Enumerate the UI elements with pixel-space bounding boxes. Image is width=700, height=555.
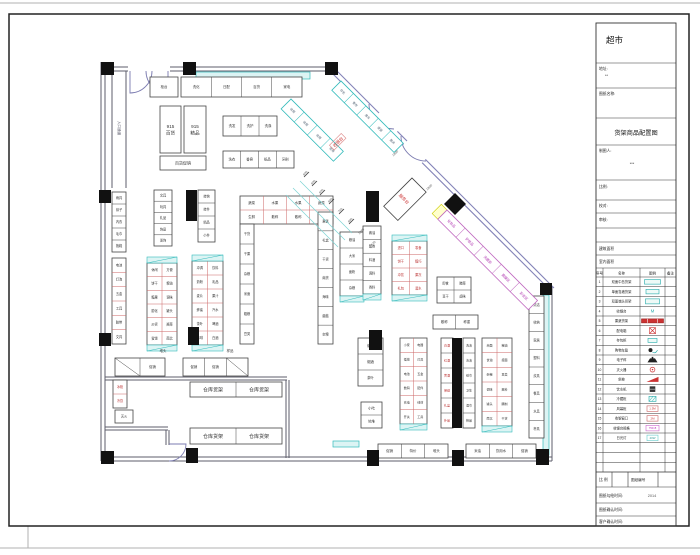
check-label: 校对:: [599, 203, 608, 208]
shelf-label: 洗洁: [466, 343, 472, 348]
shelf-group: 进口零食饼干糖巧冲饮果冻礼包酒水: [392, 235, 427, 301]
column: [452, 450, 464, 466]
legend-name: 灭火器: [617, 368, 628, 372]
legend-no: 7: [599, 339, 601, 343]
shelf-group: 促销特价堆头: [378, 444, 448, 458]
shelf-group: 散称称重: [433, 315, 478, 329]
shelf-label: 小家: [404, 342, 410, 347]
shelf-group: 果篮礼盒干货南货海味菌菇杂粮: [318, 212, 333, 344]
shelf-label: 促销: [149, 364, 156, 369]
shelf-label: 补品: [444, 418, 450, 423]
shelf-label: 小件: [203, 233, 210, 238]
shelf-label: 地堆: [368, 419, 375, 424]
scale-label: 比例:: [599, 184, 608, 189]
shelf-label: 牙刷: [282, 157, 289, 162]
column: [188, 327, 199, 345]
shelf-label: 袜子: [116, 207, 123, 212]
column: [369, 330, 382, 350]
shelf-label: 卫生: [466, 388, 472, 393]
shelf-label: 五金: [417, 371, 423, 376]
plan-label: 入口通道: [117, 121, 122, 136]
svg-text:1.5M: 1.5M: [649, 407, 656, 411]
shelf-group: 电池灯泡五金工具胶带文具: [112, 258, 126, 344]
addr-label: 地址:: [599, 66, 608, 71]
shelf-label: 仓库货架: [249, 386, 269, 393]
legend-row: 6配电箱: [599, 328, 656, 334]
shelf-label: 棉品: [466, 418, 472, 423]
maker-label: 制图人:: [599, 148, 611, 153]
legend-name: 风幕柜: [617, 406, 628, 411]
legend-header: 名称: [618, 271, 626, 276]
legend-row: 12饮水机: [598, 386, 655, 391]
shelf-label: 即食: [442, 281, 449, 286]
legend-no: 4: [599, 309, 601, 313]
shelf-label: 饮用水: [496, 448, 507, 453]
column: [366, 191, 379, 222]
svg-text:40W: 40W: [650, 436, 656, 440]
shelf-label: 罐头: [166, 308, 173, 313]
shelf-label: 塑料: [533, 355, 540, 360]
shelf-group: 米油饮用水促销: [466, 444, 536, 458]
shelf-label: 豆干: [442, 295, 449, 299]
shelf-label: 饼干: [398, 258, 405, 263]
legend-row: 7存包柜: [599, 338, 657, 343]
shelf-label: 礼盒: [444, 403, 450, 408]
shelf-label: 百货: [166, 129, 176, 136]
dimension-label: 600: [310, 179, 317, 186]
shelf-group: 915百货: [160, 106, 181, 153]
shelf-label: 家居: [533, 337, 539, 342]
shelf-label: 糖果: [151, 294, 158, 299]
shelf-label: 保健: [444, 388, 450, 393]
shelf-label: 蔬菜: [248, 200, 255, 205]
shelf-group: 冰柜冷饮: [113, 380, 127, 408]
legend-no: 13: [598, 397, 602, 401]
legend-no: 9: [599, 358, 601, 362]
shelf-label: 茶叶: [197, 321, 204, 326]
shelf-label: 方便: [166, 267, 173, 272]
shelf-label: 冰柜: [117, 384, 124, 389]
storeroom-door: [169, 444, 186, 461]
column: [536, 449, 549, 465]
legend-name: 果蔬货架: [615, 318, 629, 323]
shelf-label: 豆类: [244, 331, 251, 336]
legend-header: 序号: [596, 271, 604, 276]
shelf-label: 挂面: [501, 357, 507, 362]
legend-no: 1: [599, 280, 601, 284]
shelf-label: 卤味: [459, 294, 466, 299]
shelf-label: 湿巾: [466, 403, 472, 408]
column: [183, 62, 196, 75]
shelf-label: 酱料: [501, 386, 507, 391]
shelf-label: 纸品: [264, 157, 271, 162]
shelf-label: 乳品: [212, 279, 218, 284]
footer-scale-label: 比 例: [599, 477, 608, 482]
shelf-label: 日配: [223, 84, 230, 89]
shelf-label: 大米: [349, 253, 356, 258]
shelf-label: 洗化: [193, 84, 200, 89]
shelf-label: 工具: [116, 305, 123, 310]
legend-row: 17日光灯40W: [598, 435, 658, 441]
shelf-label: 啤酒: [212, 321, 219, 326]
shelf-label: 收纳: [533, 320, 539, 325]
shelf-group: 仓库货架仓库货架: [190, 428, 282, 444]
shelf-label: 礼盒: [322, 237, 329, 242]
column: [186, 448, 198, 463]
shelf-label: 冷饮: [117, 398, 124, 403]
svg-text:750×8: 750×8: [649, 426, 657, 430]
footer-sheetno-label: 图纸编号: [631, 477, 646, 482]
shelf-group: 米面粮油食油挂面杂粮豆类调味酱料罐头腌制南北干货: [482, 338, 512, 432]
legend-row: 3双面端头货架: [599, 299, 660, 304]
shelf-group: 小家电器插排灯具电池五金数码配件充电线材开关工具: [400, 338, 427, 430]
title-block-border: [596, 23, 676, 526]
shelf-group: 洗化日配百货家电: [181, 77, 302, 97]
shelf-label: 散称: [295, 214, 302, 219]
shelf-label: 促销: [521, 448, 528, 453]
legend-no: 3: [599, 300, 601, 304]
column: [540, 283, 552, 295]
legend-no: 5: [599, 319, 601, 323]
shelf-label: 线材: [417, 400, 423, 405]
maker-value: ***: [630, 162, 635, 166]
column: [99, 333, 111, 346]
shelf-label: 百货: [253, 84, 260, 89]
shelf-label: 面粉: [349, 269, 356, 274]
shelf-group: 柜台: [150, 77, 178, 97]
svg-text:2M: 2M: [650, 416, 655, 420]
shelf-label: 奶粉: [197, 279, 204, 284]
shelf-label: 水果: [271, 200, 278, 205]
shelf-group: 即食腌菜豆干卤味: [437, 277, 471, 303]
shelf-label: 南货: [322, 275, 328, 280]
column: [101, 451, 114, 464]
floorplan-sheet: 柜台洗化日配百货家电915百货915精品百货促销洗发洗护洗涤洗衣香皂纸品牙刷雨具…: [0, 0, 700, 555]
dimension-label: 600: [318, 188, 325, 195]
shelf-label: 水具: [533, 408, 540, 413]
legend-no: 10: [598, 368, 602, 372]
shelf-label: 黄酒: [444, 373, 450, 378]
legend-name: 存包柜: [617, 338, 628, 343]
shelf-label: 充电: [404, 400, 410, 405]
shelf-label: 炊具: [533, 373, 540, 378]
shelf-label: 915: [167, 124, 175, 129]
legend-row: 4收银台M: [599, 308, 655, 313]
shelf-label: 膨化: [151, 308, 158, 313]
shelf-label: 电池: [116, 262, 123, 267]
shelf-label: 生鲜: [248, 214, 255, 219]
shelf-label: 干果: [244, 251, 251, 256]
shelf-label: 汽水: [212, 307, 219, 312]
shelf-group: 干货干果杂粮米面粗粮豆类: [240, 224, 254, 344]
shelf-label: 干货: [322, 256, 328, 261]
shelf-label: 杂粮: [244, 271, 251, 276]
door-opening-main: [128, 64, 170, 73]
shelf-label: 文具: [116, 334, 123, 339]
shelf-label: 柜台: [161, 84, 168, 89]
legend-name: 收银窗口: [615, 416, 628, 421]
audit-label: 审核:: [599, 217, 608, 222]
shelf-label: 腌菜: [459, 281, 466, 286]
legend-name: 斜坡: [618, 377, 625, 382]
shelving: 柜台洗化日配百货家电915百货915精品百货促销洗发洗护洗涤洗衣香皂纸品牙刷雨具…: [112, 77, 544, 458]
shelf-label: 仓库货架: [249, 433, 269, 440]
shelf-label: 散称: [441, 319, 448, 324]
shelf-label: 散称: [271, 214, 278, 219]
legend-name: 饮水机: [617, 386, 628, 391]
shelf-label: 进口: [398, 245, 404, 250]
shelf-group: 915精品: [184, 106, 206, 153]
shelf-label: 海味: [322, 294, 329, 299]
legend-name: 日光灯: [617, 435, 628, 440]
shelf-label: 调料: [369, 271, 376, 276]
shelf-label: 杂粮: [486, 372, 492, 377]
shelf-label: 配件: [417, 385, 423, 390]
shelf-label: 餐具: [533, 391, 540, 396]
legend-row: 16收银台规格750×8: [598, 425, 659, 431]
shelf-label: 零食: [415, 245, 422, 250]
shelf-label: 洗护: [247, 123, 254, 128]
shelf-label: 灯泡: [116, 277, 123, 282]
shelf-label: 豆类: [501, 372, 507, 377]
shelf-group: 小吃地堆: [361, 402, 382, 428]
legend-row: 1双面中岛货架: [599, 279, 661, 284]
shelf-label: 插排: [404, 357, 410, 362]
shelf-label: 数码: [404, 385, 410, 390]
door-opening-diag-2: [401, 140, 426, 165]
sheet-title: 超市: [606, 35, 624, 45]
shelf-label: 调味: [166, 294, 173, 299]
shelf-group: 休闲方便饼干粮油糖果调味膨化罐头炒货酱菜蜜饯南北: [147, 257, 177, 351]
shelf-label: 915: [191, 124, 199, 129]
shelf-label: 酱菜: [166, 322, 173, 327]
shelf-label: 精品: [190, 129, 200, 136]
shelf-label: 挂钩: [203, 194, 209, 199]
legend-name: 单面靠墙货架: [612, 289, 632, 294]
shelf-label: 烟酒: [367, 359, 374, 364]
shelf-label: 果汁: [212, 293, 219, 298]
shelf-label: 酒水: [415, 285, 422, 290]
shelf-label: 仓库货架: [203, 433, 223, 440]
shelf-label: 南北: [486, 416, 492, 421]
dimension-label: 1800: [425, 183, 433, 191]
column: [186, 190, 197, 221]
shelf-group: 洗衣香皂纸品牙刷: [223, 151, 294, 168]
legend-header: 备注: [667, 271, 675, 276]
shelf-group: 促销促销: [183, 358, 248, 376]
shelf-label: 精品: [203, 220, 209, 225]
shelf-label: 米面: [244, 291, 250, 296]
shelf-label: 灯具: [417, 357, 423, 362]
shelf-label: 南北: [166, 335, 173, 340]
column: [99, 190, 111, 203]
shelf-group: 灭火: [115, 410, 133, 423]
shelf-label: 蜜饯: [151, 335, 158, 340]
shelf-group: 粮油大米面粉杂粮: [340, 232, 364, 302]
shelf-label: 小吃: [368, 406, 375, 411]
shelf-label: 杂粮: [322, 332, 329, 337]
shelf-label: 冲调: [197, 265, 203, 270]
shelf-label: 红酒: [444, 358, 450, 363]
shelf-label: 挂件: [203, 207, 210, 212]
legend-row: 8购物车篮: [599, 347, 658, 352]
shelf-label: 礼包: [398, 285, 405, 290]
legend-row: 9电子秤: [599, 357, 658, 363]
shelf-label: 玩具: [160, 204, 167, 209]
legend-row: 13冷藏柜: [598, 396, 656, 401]
drawing-title: 货架商品配置图: [614, 129, 657, 137]
shelf-group: 促销: [115, 358, 165, 376]
shelf-label: 酱油: [369, 230, 375, 235]
shelf-label: 饼干: [151, 281, 158, 286]
legend-name: 配电箱: [617, 328, 628, 333]
shelf-label: 百货促销: [175, 159, 191, 165]
shelf-group: 百货促销: [160, 156, 206, 170]
shelf-label: 白酒: [444, 343, 450, 348]
shelf-label: 促销: [386, 448, 393, 453]
shelf-label: 雨具: [116, 195, 123, 200]
legend-no: 14: [598, 407, 602, 411]
shelf-label: 电池: [404, 371, 410, 376]
shelf-label: 粮油: [166, 281, 172, 286]
dimension-label: 890: [347, 217, 354, 224]
shelf-label: 杯具: [533, 426, 540, 431]
legend-row: 5果蔬货架: [599, 318, 664, 323]
shelf-group: 文具玩具礼品饰品发饰: [154, 190, 172, 246]
shelf-label: 发饰: [160, 238, 166, 243]
legend-no: 15: [598, 417, 602, 421]
wall-shelf-band: [333, 441, 359, 447]
name-label: 图纸名称:: [599, 91, 615, 96]
legend-name: 收银台: [617, 308, 628, 313]
shelf-label: 堆头: [433, 448, 440, 453]
legend-no: 17: [598, 436, 602, 440]
legend-no: 8: [599, 348, 601, 352]
shelf-label: 仓库货架: [203, 386, 223, 393]
shelf-label: 毛巾: [116, 231, 122, 236]
dimension-label: 760: [337, 207, 344, 214]
column: [452, 338, 462, 428]
shelf-label: 饰品: [160, 226, 166, 231]
shelf-label: 糖巧: [415, 258, 422, 263]
legend-name: 双面端头货架: [612, 299, 632, 304]
shelf-label: 蜂蜜: [197, 307, 203, 312]
legend-name: 收银台规格: [613, 425, 630, 430]
shelf-group: 清洁收纳家居塑料炊具餐具水具杯具: [529, 296, 544, 438]
shelf-label: 白酒: [212, 335, 219, 340]
shelf-label: 开关: [404, 414, 410, 419]
dimension-label: 600: [302, 170, 309, 177]
shelf-label: 促销: [190, 364, 197, 369]
shelf-label: 干货: [501, 416, 507, 421]
area1-label: 建筑面积: [599, 246, 614, 251]
footer-confirmtime-label: 图纸确认时间:: [599, 507, 623, 512]
shelf-label: 饮料: [212, 265, 219, 270]
shelf-label: 促销: [212, 364, 219, 369]
footer-drawtime-value: 2014: [648, 494, 656, 498]
plan-label: 堆头: [160, 348, 167, 353]
footer-drawtime-label: 图纸勾绘时间:: [599, 493, 623, 498]
legend-row: 14风幕柜1.5M: [598, 406, 658, 412]
shelf-group: 雨具袜子内衣毛巾拖鞋: [112, 192, 126, 252]
shelf-label: 麦片: [197, 293, 203, 298]
shelf-label: 杂粮: [349, 285, 356, 290]
shelf-label: 调味: [486, 386, 492, 391]
legend-no: 16: [598, 426, 602, 430]
legend-row: 2单面靠墙货架: [599, 289, 659, 294]
legend-header: 图例: [649, 271, 657, 276]
shelf-group: 洗洁清洁纸巾卫生湿巾棉品: [463, 338, 475, 428]
shelf-group: 酱油醋类料酒调料香料: [363, 226, 381, 300]
legend-name: 冷藏柜: [617, 396, 628, 401]
shelf-label: 胶带: [116, 320, 123, 325]
footer-clienttime-label: 客户确认时间:: [599, 519, 623, 524]
column: [367, 450, 379, 466]
shelf-label: 五金: [116, 291, 123, 296]
legend-name: 双面中岛货架: [612, 279, 632, 284]
shelf-label: 特价: [410, 448, 417, 453]
shelf-label: 纸巾: [466, 373, 472, 378]
shelf-label: 茶叶: [367, 375, 374, 380]
shelf-label: 洗衣: [228, 157, 235, 162]
shelf-label: 家电: [283, 84, 290, 89]
shelf-label: 电器: [417, 342, 423, 347]
shelf-label: 粮油: [349, 237, 355, 242]
shelf-label: 菌菇: [322, 313, 329, 318]
shelf-label: 食油: [486, 357, 492, 362]
shelf-group: 洗发洗护洗涤: [223, 116, 277, 136]
legend-name: 电子秤: [617, 357, 628, 362]
shelf-label: 香皂: [246, 157, 253, 162]
shelf-label: 米面: [486, 342, 492, 347]
legend-row: 11斜坡: [598, 377, 659, 382]
shelf-group: 白酒红酒黄酒保健礼盒补品: [441, 338, 453, 428]
shelf-group: 挂钩挂件精品小件: [198, 190, 215, 242]
shelf-label: 称重: [463, 319, 470, 324]
shelf-label: 灭火: [121, 415, 128, 419]
shelf-label: 内衣: [116, 219, 123, 224]
shelf-label: 干货: [244, 231, 250, 236]
shelf-label: 休闲: [151, 267, 157, 272]
legend-row: 15收银窗口2M: [598, 416, 658, 422]
title-block: 超市 地址: ** 图纸名称: 货架商品配置图 制图人: *** 比例: 校对:…: [596, 23, 676, 526]
column: [325, 62, 338, 75]
shelf-label: 果冻: [415, 272, 422, 277]
shelf-label: 炒货: [151, 322, 157, 327]
shelf-label: 粮油: [501, 342, 507, 347]
shelf-label: 罐头: [486, 401, 492, 406]
legend-name: 购物车篮: [615, 347, 629, 352]
shelf-label: 洗发: [229, 123, 236, 128]
svg-text:M: M: [651, 309, 655, 314]
shelf-label: 文具: [160, 193, 167, 198]
legend-no: 12: [598, 387, 602, 391]
shelf-label: 冲饮: [398, 272, 405, 277]
legend-no: 6: [599, 329, 601, 333]
shelf-label: 礼品: [160, 215, 166, 220]
shelf-label: 米油: [474, 448, 481, 453]
legend-row: 10灭火器: [598, 367, 655, 372]
column: [101, 62, 114, 75]
area2-label: 室内面积: [599, 259, 614, 264]
plan-label: 样品: [227, 348, 234, 353]
legend-no: 2: [599, 290, 601, 294]
shelf-label: 拖鞋: [116, 243, 123, 248]
shelf-label: 料酒: [369, 257, 376, 262]
shelf-label: 香料: [369, 284, 376, 289]
shelf-label: 工具: [417, 414, 423, 419]
legend-no: 11: [598, 378, 602, 382]
